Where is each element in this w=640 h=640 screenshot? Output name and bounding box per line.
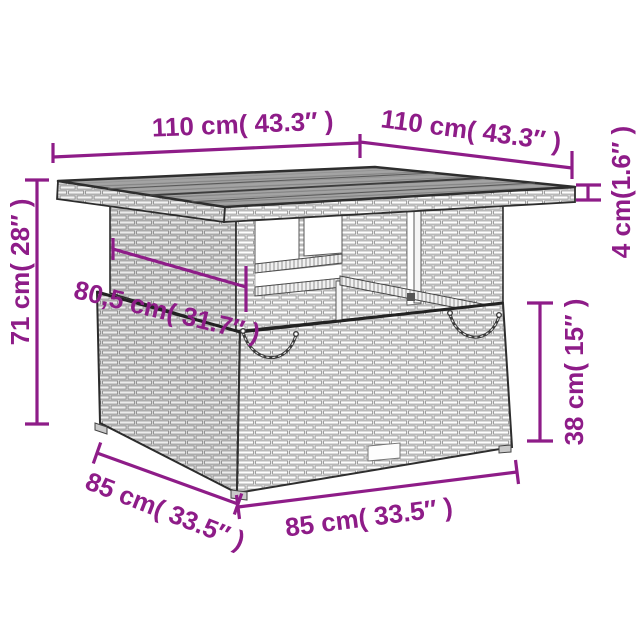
dimension-top-width: 110 cm( 43.3″ ): [53, 105, 360, 163]
diagram-svg: 110 cm( 43.3″ ) 110 cm( 43.3″ ) 71 cm( 2…: [0, 0, 640, 640]
dimension-tabletop-thickness: 4 cm(1.6″ ): [576, 126, 636, 258]
base-front-face: [237, 303, 512, 493]
product-dimension-image: 110 cm( 43.3″ ) 110 cm( 43.3″ ) 71 cm( 2…: [0, 0, 640, 640]
dim-label-overall-height: 71 cm( 28″ ): [5, 199, 35, 346]
dim-cap: [516, 460, 519, 484]
pedestal-window-2: [304, 213, 342, 256]
dim-label-base-height: 38 cm( 15″ ): [559, 299, 589, 446]
dimension-overall-height: 71 cm( 28″ ): [5, 180, 49, 424]
base-label-tag: [368, 443, 400, 461]
dim-line: [53, 143, 360, 157]
lift-post-right: [414, 207, 421, 303]
table-illustration: [57, 167, 575, 500]
base-foot-right: [499, 445, 511, 453]
pedestal-window-1: [255, 216, 299, 264]
dimension-base-height: 38 cm( 15″ ): [527, 299, 589, 446]
dim-label-top-width: 110 cm( 43.3″ ): [151, 105, 334, 142]
lift-bracket: [407, 293, 415, 301]
dim-label-tabletop-thickness: 4 cm(1.6″ ): [606, 126, 636, 258]
